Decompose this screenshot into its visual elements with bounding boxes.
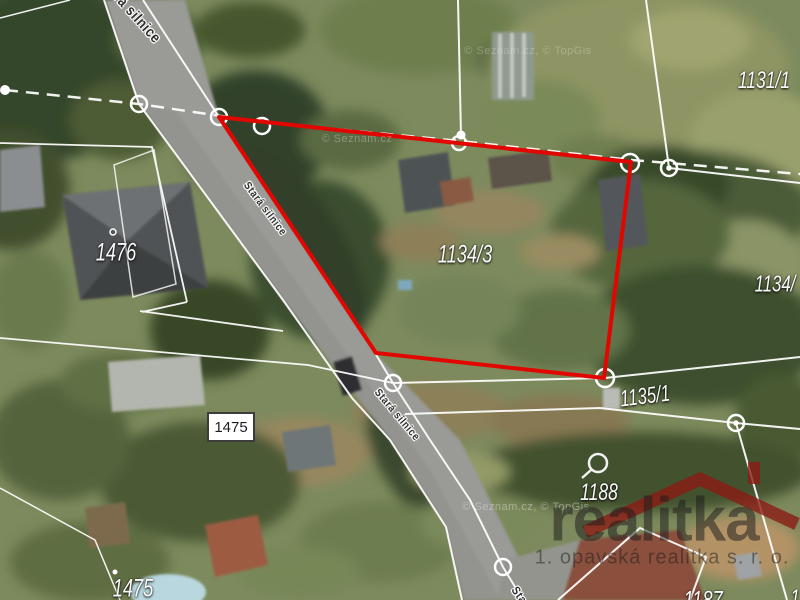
realitka-company-watermark: 1. opavská realitka s. r. o. [535,547,790,570]
copyright-watermark-mid: © Seznam.cz [321,133,392,145]
parcel-label-1134-partial: 1134/ [755,271,796,298]
parcel-label-1475: 1475 [113,575,154,600]
parcel-label-edge-partial: 1 [790,585,799,600]
copyright-watermark-top: © Seznam.cz, © TopGis [464,45,591,57]
map-canvas[interactable]: 1131/1 1476 1134/3 1134/ 1135/1 1188 147… [0,0,800,600]
realitka-logo-watermark: realitka [549,485,758,556]
parcel-label-1475-boxed: 1475 [207,412,255,442]
parcel-label-1134-3: 1134/3 [438,241,492,270]
parcel-label-1476: 1476 [96,239,137,268]
parcel-label-1131-1: 1131/1 [738,67,790,95]
parcel-label-1187: 1187 [683,587,722,600]
